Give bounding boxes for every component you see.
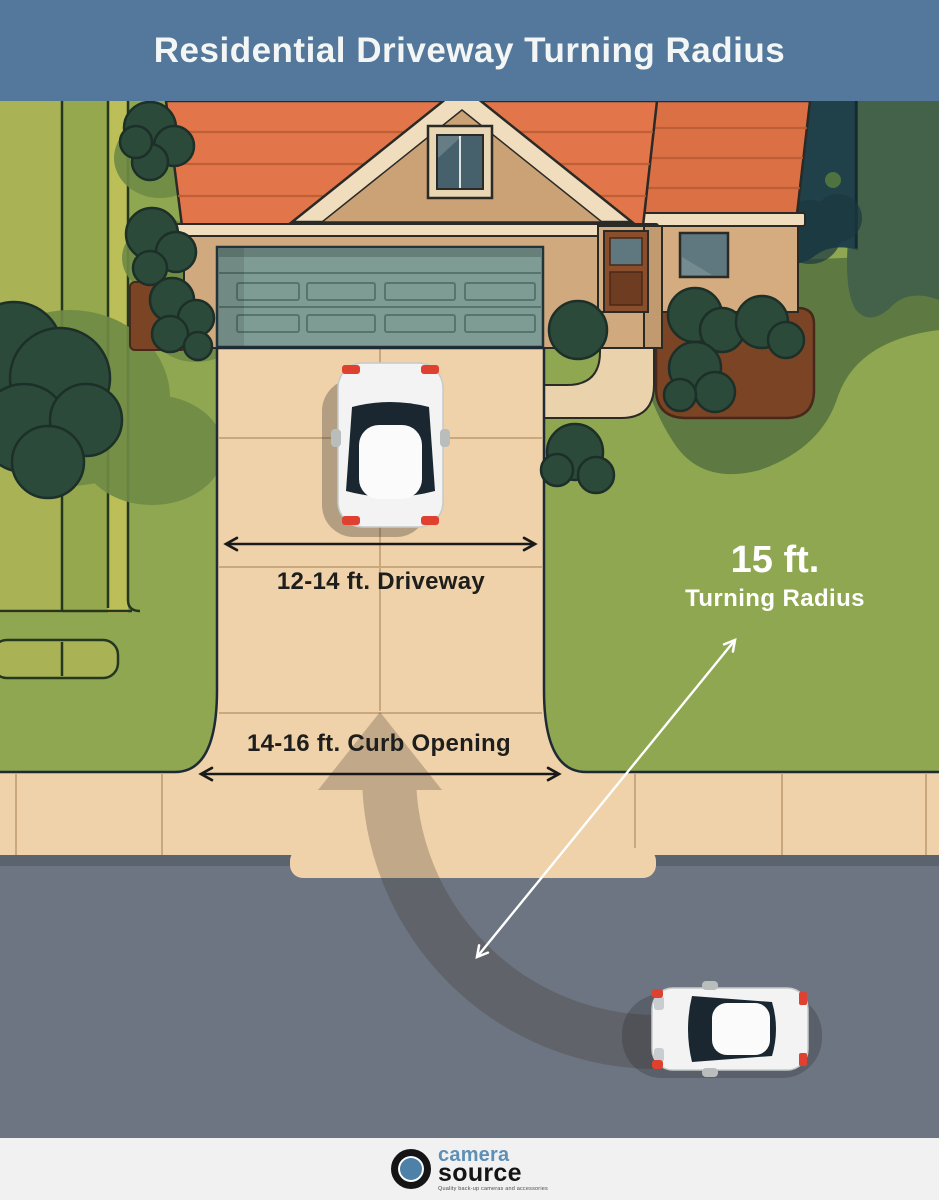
logo-tagline: Quality back-up cameras and accessories <box>438 1187 548 1193</box>
driveway-diagram: 12-14 ft. Driveway 14-16 ft. Curb Openin… <box>0 101 939 1138</box>
car-mirror-top <box>702 981 718 990</box>
logo-text-source: source <box>438 1161 548 1186</box>
driveway-car <box>322 363 450 537</box>
entry-window <box>680 233 728 277</box>
page-title: Residential Driveway Turning Radius <box>154 31 785 71</box>
tree-canopy-outer <box>847 101 939 318</box>
car-roof <box>359 425 422 499</box>
garage-door <box>217 247 543 347</box>
title-bar: Residential Driveway Turning Radius <box>0 0 939 101</box>
driveway-apron <box>290 848 656 878</box>
camera-source-logo: camera source Quality back-up cameras an… <box>391 1145 548 1193</box>
curb-opening-label: 14-16 ft. Curb Opening <box>247 730 511 757</box>
car-mirror-left <box>331 429 341 447</box>
street-car <box>622 981 822 1078</box>
turning-radius-caption: Turning Radius <box>685 585 865 612</box>
footer-bar: camera source Quality back-up cameras an… <box>0 1138 939 1200</box>
canopy-highlight <box>825 172 841 188</box>
car-roof <box>712 1003 770 1055</box>
front-door <box>604 231 648 312</box>
driveway-width-label: 12-14 ft. Driveway <box>277 568 486 595</box>
turning-radius-value: 15 ft. <box>731 539 820 581</box>
car-mirror-bottom <box>702 1068 718 1077</box>
car-mirror-right <box>440 429 450 447</box>
infographic-page: Residential Driveway Turning Radius <box>0 0 939 1200</box>
camera-lens-icon <box>391 1149 431 1189</box>
illustration: 12-14 ft. Driveway 14-16 ft. Curb Openin… <box>0 101 939 1138</box>
